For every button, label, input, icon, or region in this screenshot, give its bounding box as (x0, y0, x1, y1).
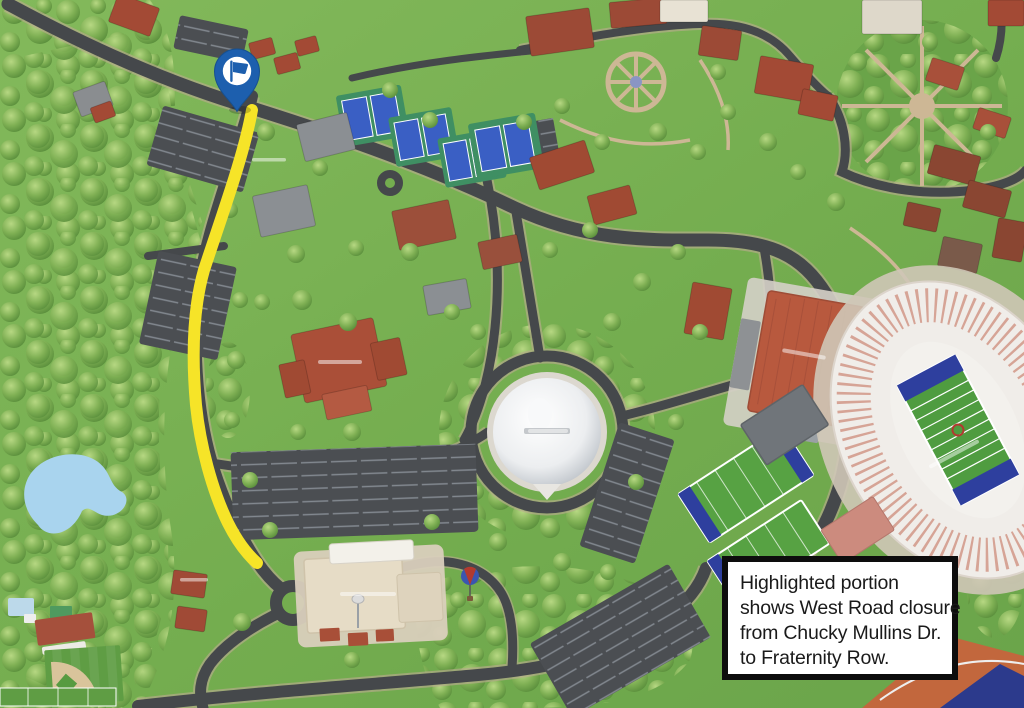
annotation-line-3: from Chucky Mullins Dr. (740, 621, 940, 646)
annotation-box: Highlighted portion shows West Road clos… (722, 556, 958, 680)
annotation-line-4: to Fraternity Row. (740, 646, 940, 671)
annotation-line-2: shows West Road closure (740, 596, 940, 621)
annotation-line-1: Highlighted portion (740, 571, 940, 596)
map-screenshot: Highlighted portion shows West Road clos… (0, 0, 1024, 708)
